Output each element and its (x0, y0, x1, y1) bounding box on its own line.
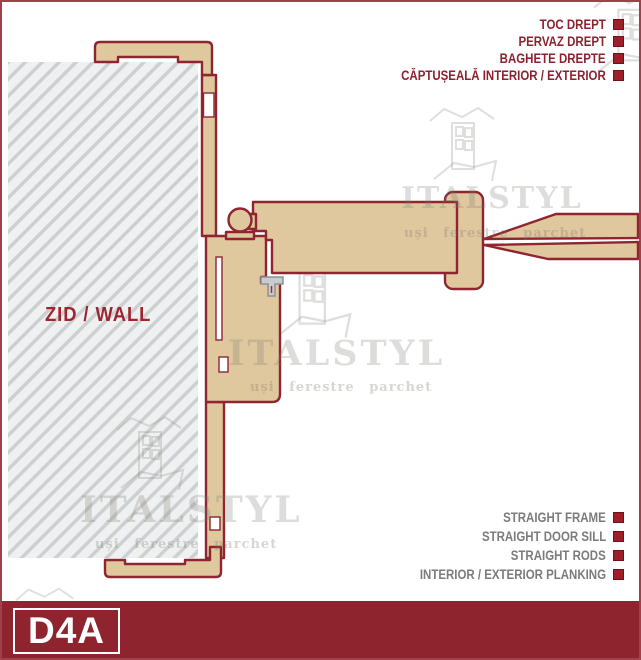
break-line-lower (484, 242, 638, 259)
legend-label: TOC DREPT (540, 17, 606, 32)
legend-top: TOC DREPTPERVAZ DREPTBAGHETE DREPTECĂPTU… (365, 16, 624, 84)
joint-slot (219, 357, 228, 372)
legend-label: BAGHETE DREPTE (500, 51, 606, 66)
legend-square-icon (613, 550, 624, 561)
legend-label: PERVAZ DREPT (518, 34, 606, 49)
hinge-circle-icon (229, 209, 252, 232)
legend-item: BAGHETE DREPTE (365, 50, 624, 67)
diagram-page: ITALSTYL uși ferestre parchet ITALSTYL u… (0, 0, 641, 660)
legend-item: TOC DREPT (365, 16, 624, 33)
legend-label: STRAIGHT RODS (511, 548, 606, 563)
legend-label: CĂPTUȘEALĂ INTERIOR / EXTERIOR (401, 68, 606, 83)
legend-bottom: STRAIGHT FRAMESTRAIGHT DOOR SILLSTRAIGHT… (387, 508, 624, 584)
legend-item: INTERIOR / EXTERIOR PLANKING (387, 565, 624, 584)
legend-square-icon (613, 569, 624, 580)
watermark-logo-icon (430, 108, 496, 181)
break-line-upper (484, 214, 638, 239)
legend-square-icon (613, 512, 624, 523)
joint-slot (210, 517, 220, 530)
legend-item: STRAIGHT FRAME (387, 508, 624, 527)
legend-square-icon (613, 36, 624, 47)
legend-square-icon (613, 70, 624, 81)
wall-label: ZID / WALL (45, 304, 151, 327)
legend-item: CĂPTUȘEALĂ INTERIOR / EXTERIOR (365, 67, 624, 84)
door-leaf (253, 202, 457, 273)
bottom-banner: D4A (2, 601, 639, 658)
hinge-plate (226, 232, 254, 239)
legend-label: STRAIGHT FRAME (503, 510, 606, 525)
joint-slot (216, 257, 222, 340)
legend-item: PERVAZ DREPT (365, 33, 624, 50)
legend-label: INTERIOR / EXTERIOR PLANKING (420, 567, 606, 582)
diagram-code: D4A (13, 608, 120, 654)
legend-square-icon (613, 53, 624, 64)
legend-square-icon (613, 531, 624, 542)
legend-square-icon (613, 19, 624, 30)
legend-item: STRAIGHT DOOR SILL (387, 527, 624, 546)
joint-slot (204, 93, 215, 117)
legend-item: STRAIGHT RODS (387, 546, 624, 565)
planking-strip-lower (206, 402, 224, 558)
legend-label: STRAIGHT DOOR SILL (482, 529, 606, 544)
